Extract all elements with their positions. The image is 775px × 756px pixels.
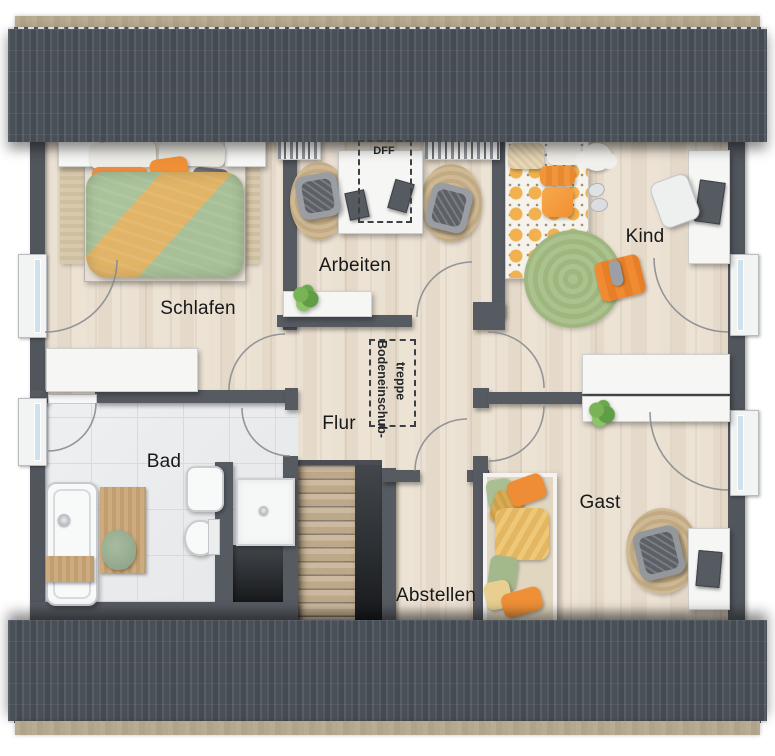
bad-tub-faucet	[58, 514, 70, 526]
wall-stairs-abstellen	[382, 468, 396, 622]
floor-plan: DFF Bodeneinschub- treppe Schlafen Arbei…	[0, 0, 775, 756]
gast-plant	[586, 398, 616, 428]
kind-pillow-orange	[540, 166, 575, 186]
attic-ladder-label-line1: Bodeneinschub-	[372, 340, 391, 422]
room-label-arbeiten: Arbeiten	[319, 255, 391, 277]
gast-laptop	[695, 550, 722, 588]
bad-door-leaf	[48, 394, 97, 404]
wall-corner-arbeiten-kind	[473, 302, 505, 330]
bad-sink	[186, 466, 224, 512]
room-label-abstellen: Abstellen	[396, 585, 476, 607]
arbeiten-chair-right-cushion	[430, 188, 467, 228]
window-schlafen-glass	[34, 259, 41, 333]
window-gast-glass	[737, 415, 744, 491]
wall-corner-flur-gast	[473, 388, 489, 408]
room-label-schlafen: Schlafen	[160, 298, 236, 320]
room-label-kind: Kind	[626, 226, 665, 248]
attic-ladder-label-line2: treppe	[391, 340, 410, 422]
staircase-rim	[298, 460, 382, 465]
bad-tub-caddy	[46, 556, 94, 582]
arbeiten-plant	[291, 283, 319, 312]
gast-blanket	[495, 508, 549, 560]
window-schlafen	[18, 254, 47, 338]
room-label-gast: Gast	[580, 492, 621, 514]
kind-cloud-rug	[582, 143, 612, 171]
window-bad	[18, 398, 47, 466]
schlafen-dresser	[46, 348, 198, 392]
bad-shower-drain	[259, 506, 268, 515]
stairwell-void	[355, 465, 382, 622]
bad-bathtub-inner	[53, 489, 91, 599]
roof-top	[8, 27, 767, 142]
kind-sideboard	[582, 354, 730, 394]
schlafen-nightstand-right	[224, 138, 266, 167]
kind-blanket-orange	[542, 187, 573, 217]
wall-corner-bad	[285, 388, 298, 410]
window-kind-glass	[737, 259, 744, 331]
room-label-bad: Bad	[147, 451, 181, 473]
dff-label: DFF	[373, 145, 394, 157]
bad-toilet-tank	[208, 519, 220, 555]
wall-abstellen-top-left	[382, 470, 420, 482]
roof-gutter-bottom	[15, 721, 760, 735]
bad-towel	[102, 530, 136, 570]
attic-ladder-label: Bodeneinschub- treppe	[372, 340, 410, 422]
roof-bottom	[8, 620, 767, 723]
staircase	[298, 465, 355, 622]
window-kind	[730, 254, 759, 336]
wall-exterior-right	[728, 138, 745, 622]
arbeiten-chair-left-cushion	[300, 178, 335, 215]
schlafen-pillow-white-left	[90, 141, 157, 169]
bad-bathtub	[46, 482, 98, 606]
wall-exterior-left	[30, 138, 45, 622]
room-label-flur: Flur	[322, 413, 356, 435]
gast-armchair-cushion	[638, 530, 680, 575]
window-gast	[730, 410, 759, 496]
wall-arbeiten-kind	[492, 138, 505, 317]
schlafen-duvet	[86, 172, 244, 278]
arbeiten-chair-left	[293, 171, 342, 222]
window-bad-glass	[34, 403, 41, 461]
kind-pillow-beige	[508, 143, 544, 169]
